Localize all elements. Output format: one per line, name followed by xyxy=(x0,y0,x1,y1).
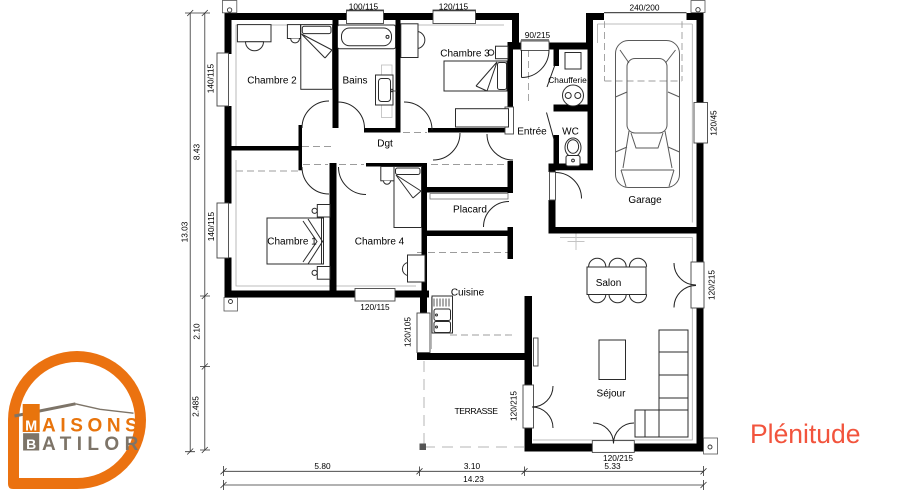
svg-text:Entrée: Entrée xyxy=(517,127,547,138)
svg-text:2.485: 2.485 xyxy=(191,396,201,417)
svg-text:120/115: 120/115 xyxy=(439,2,469,12)
svg-text:120/115: 120/115 xyxy=(360,302,390,312)
svg-text:100/115: 100/115 xyxy=(349,2,379,12)
svg-text:90/215: 90/215 xyxy=(525,30,551,40)
svg-text:5.33: 5.33 xyxy=(604,461,621,471)
svg-text:120/45: 120/45 xyxy=(709,110,719,136)
svg-text:Dgt: Dgt xyxy=(377,139,393,150)
svg-text:5.80: 5.80 xyxy=(314,461,331,471)
svg-text:Chambre 4: Chambre 4 xyxy=(355,237,405,248)
svg-text:140/115: 140/115 xyxy=(206,211,216,241)
svg-text:Chambre 3: Chambre 3 xyxy=(440,49,490,60)
svg-text:Bains: Bains xyxy=(342,76,367,87)
svg-text:Salon: Salon xyxy=(596,278,622,289)
svg-text:14.23: 14.23 xyxy=(463,474,484,484)
svg-text:240/200: 240/200 xyxy=(630,3,660,13)
svg-text:Chaufferie: Chaufferie xyxy=(548,75,587,85)
svg-text:B: B xyxy=(26,436,36,452)
svg-text:M: M xyxy=(25,419,37,435)
svg-text:TERRASSE: TERRASSE xyxy=(454,406,498,416)
svg-text:Séjour: Séjour xyxy=(597,389,627,400)
svg-text:13.03: 13.03 xyxy=(180,221,190,242)
svg-text:Chambre 1: Chambre 1 xyxy=(267,237,317,248)
svg-text:ATILOR: ATILOR xyxy=(42,434,144,455)
svg-text:140/115: 140/115 xyxy=(206,63,216,93)
svg-text:Garage: Garage xyxy=(628,195,662,206)
svg-text:Cuisine: Cuisine xyxy=(451,288,485,299)
svg-text:120/215: 120/215 xyxy=(707,270,717,300)
svg-text:120/105: 120/105 xyxy=(403,317,413,347)
svg-text:8.43: 8.43 xyxy=(192,144,202,161)
svg-text:2.10: 2.10 xyxy=(192,323,202,340)
svg-text:3.10: 3.10 xyxy=(464,461,481,471)
svg-text:120/215: 120/215 xyxy=(509,391,519,421)
svg-text:Placard: Placard xyxy=(453,205,487,216)
svg-text:Chambre 2: Chambre 2 xyxy=(247,76,297,87)
svg-text:Plénitude: Plénitude xyxy=(750,419,861,449)
svg-text:WC: WC xyxy=(562,127,579,138)
